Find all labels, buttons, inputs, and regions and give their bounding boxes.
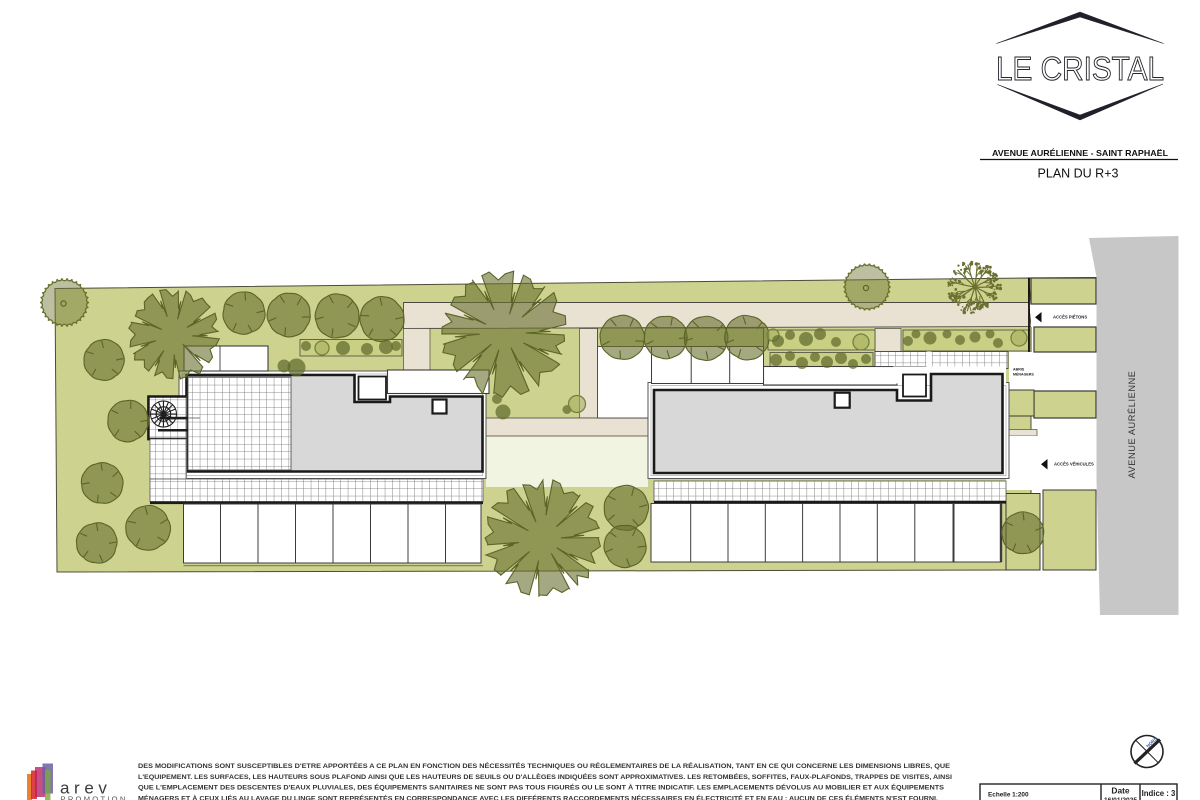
svg-text:ABRIS: ABRIS: [1013, 368, 1025, 372]
svg-text:Date: Date: [1111, 786, 1129, 796]
svg-text:PLAN DU R+3: PLAN DU R+3: [1038, 167, 1119, 181]
svg-text:PROMOTION: PROMOTION: [61, 795, 128, 800]
svg-text:DES MODIFICATIONS SONT SUSCEPT: DES MODIFICATIONS SONT SUSCEPTIBLES D'ET…: [138, 762, 950, 770]
svg-text:L'EQUIPEMENT. LES SURFACES, LE: L'EQUIPEMENT. LES SURFACES, LES HAUTEURS…: [138, 773, 952, 781]
svg-text:AVENUE AURÉLIENNE: AVENUE AURÉLIENNE: [1127, 370, 1137, 478]
svg-text:Echelle 1:200: Echelle 1:200: [988, 792, 1029, 799]
svg-text:AVENUE AURÉLIENNE - SAINT RAPH: AVENUE AURÉLIENNE - SAINT RAPHAËL: [992, 148, 1168, 158]
svg-text:Indice : 3: Indice : 3: [1142, 789, 1176, 798]
svg-text:QUE L'EMPLACEMENT DES DESCENTE: QUE L'EMPLACEMENT DES DESCENTES D'EAUX P…: [138, 784, 944, 792]
svg-text:ACCÈS PIÉTONS: ACCÈS PIÉTONS: [1053, 315, 1087, 320]
svg-text:ACCÈS VÉHICULES: ACCÈS VÉHICULES: [1054, 462, 1094, 467]
svg-text:LE CRISTAL: LE CRISTAL: [996, 50, 1164, 87]
svg-text:MÉNAGERS: MÉNAGERS: [1013, 372, 1034, 377]
svg-text:MÉNAGERS ET À CEUX LIÉS AU LAV: MÉNAGERS ET À CEUX LIÉS AU LAVAGE DU LIN…: [138, 794, 938, 800]
